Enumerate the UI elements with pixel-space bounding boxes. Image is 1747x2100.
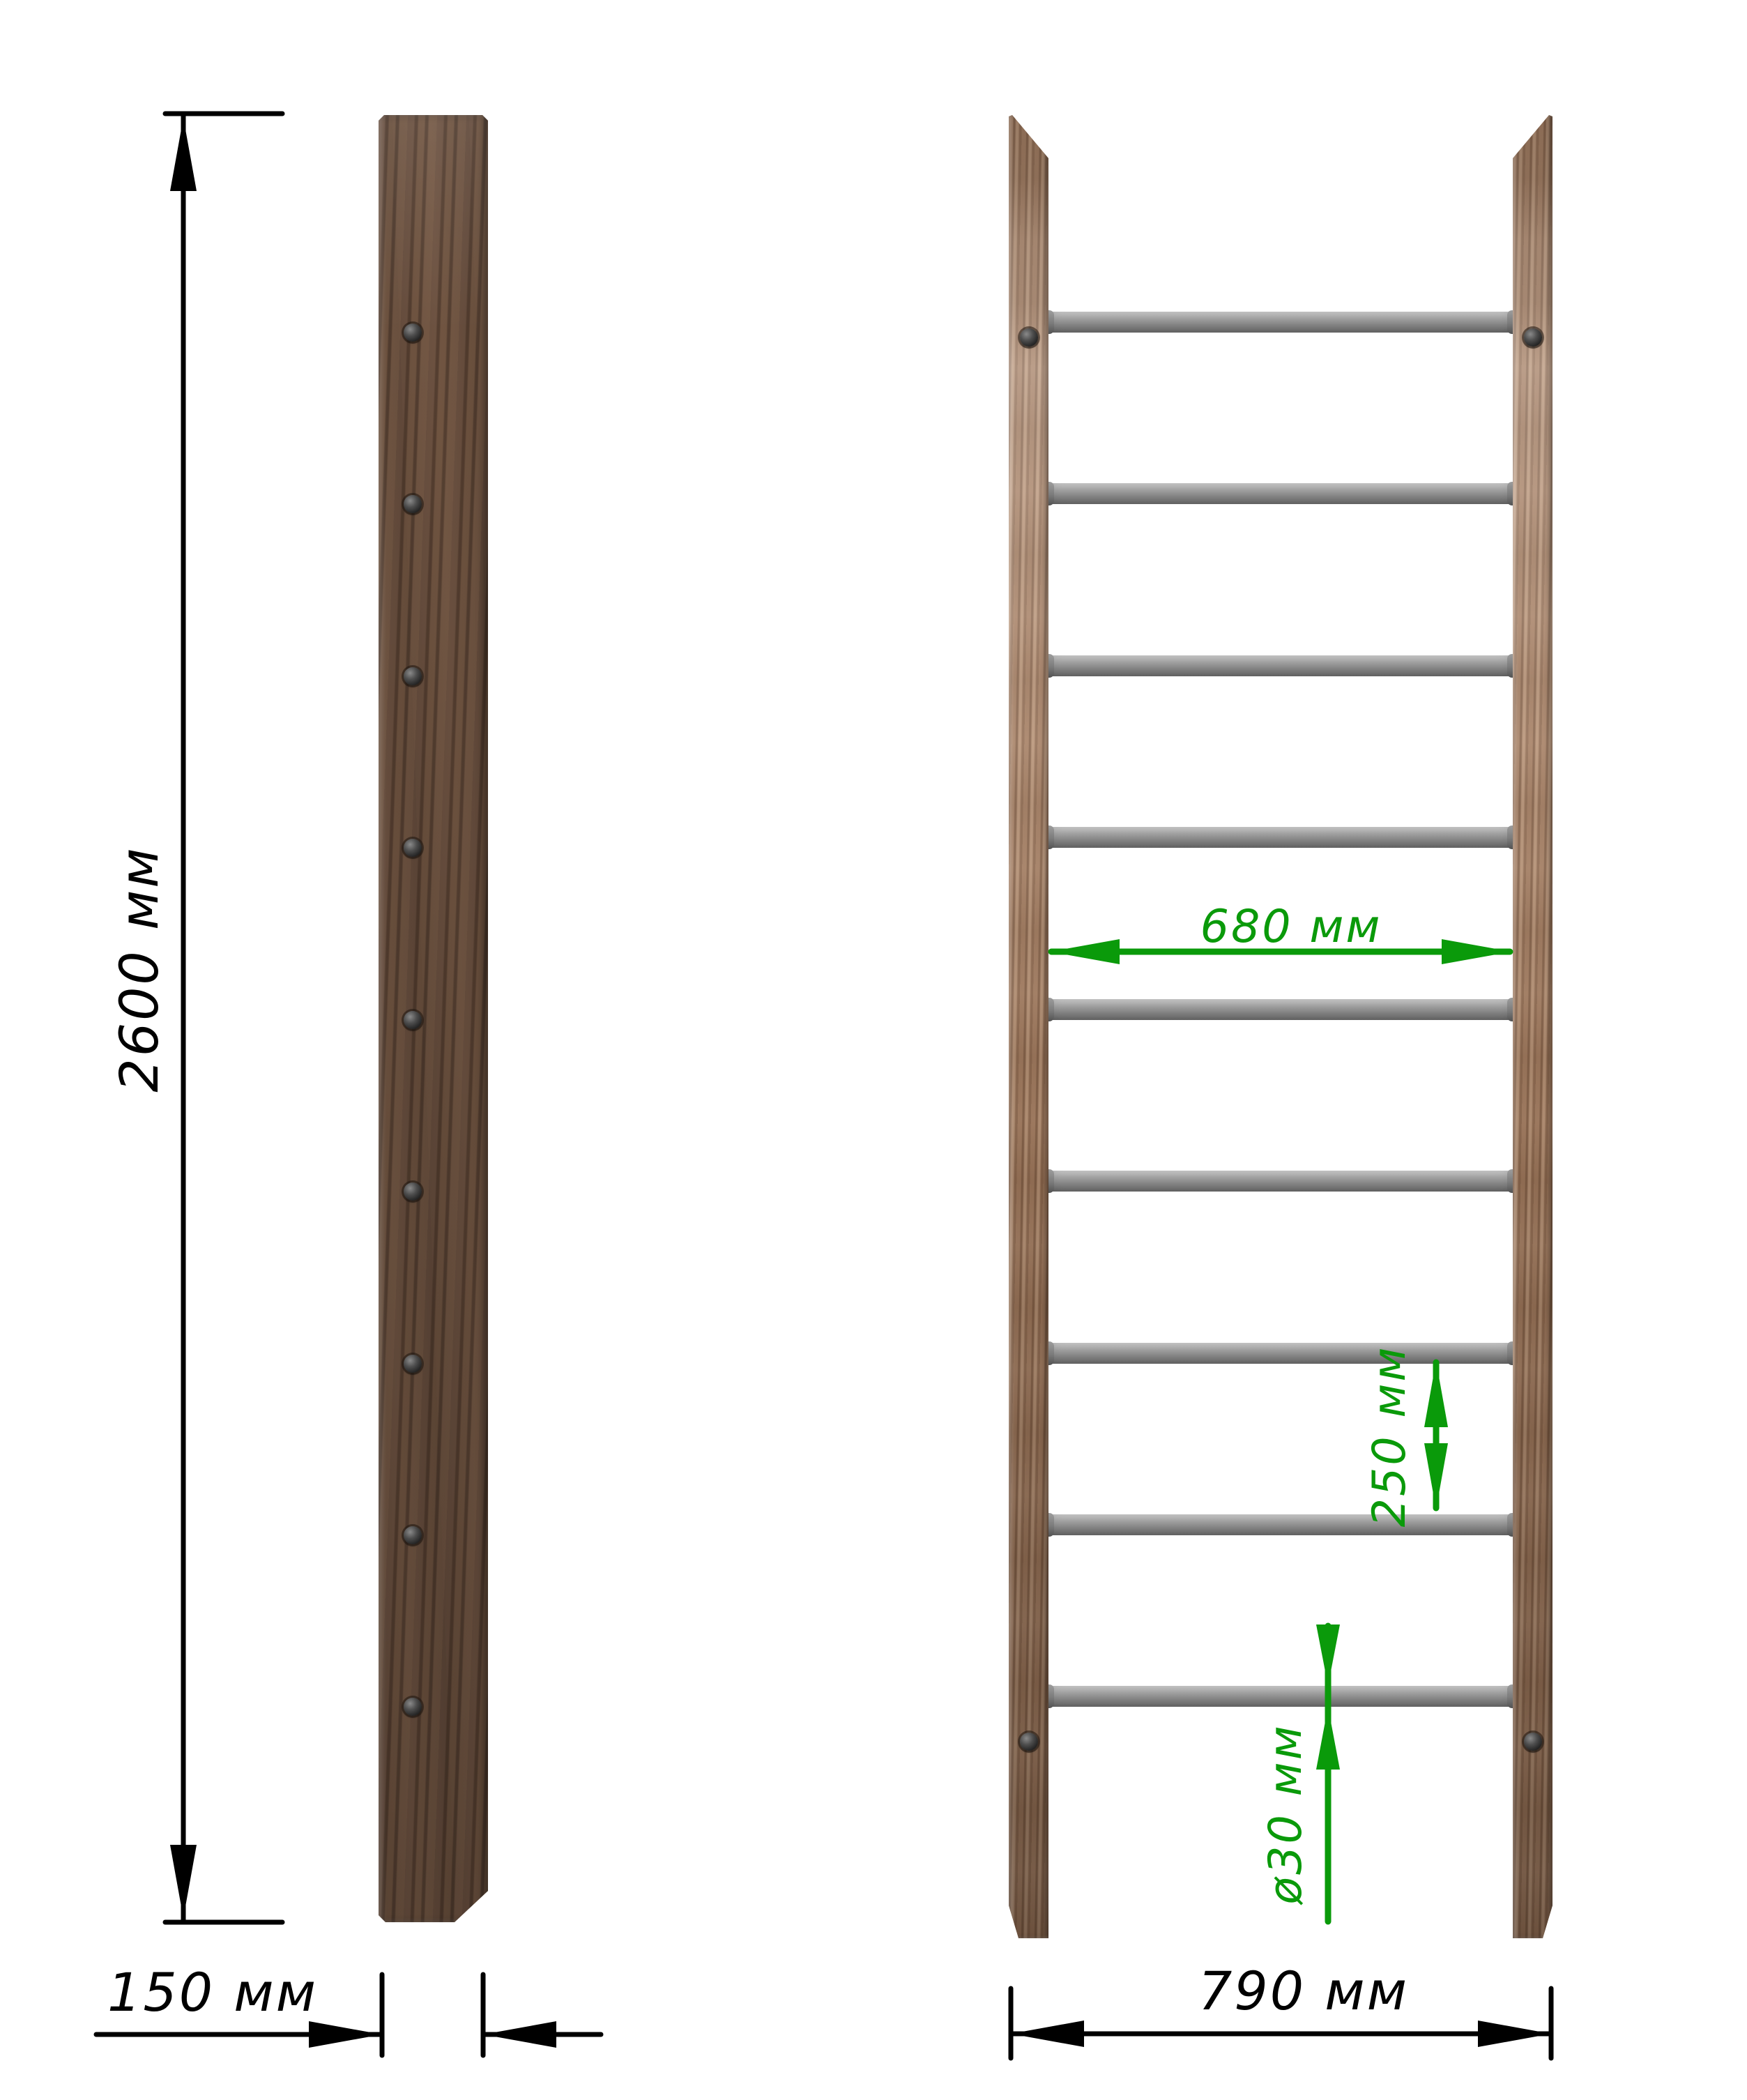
technical-drawing-canvas: 2600 мм 150 мм 790 мм 680 мм 250 мм ø30 … [0, 0, 1747, 2100]
dim-label-inner-width: 680 мм [1145, 892, 1437, 962]
dim-height-2600 [165, 114, 282, 1922]
dim-label-depth: 150 мм [66, 1958, 359, 2027]
dim-label-outer-width: 790 мм [1157, 1956, 1450, 2026]
dimension-lines-layer [0, 0, 1747, 2100]
dim-label-rung-spacing: 250 мм [1355, 1290, 1425, 1583]
dim-label-height: 2600 мм [105, 760, 174, 1178]
dim-rung-spacing-250 [1424, 1361, 1448, 1509]
dim-label-rung-diameter: ø30 мм [1251, 1668, 1321, 1961]
